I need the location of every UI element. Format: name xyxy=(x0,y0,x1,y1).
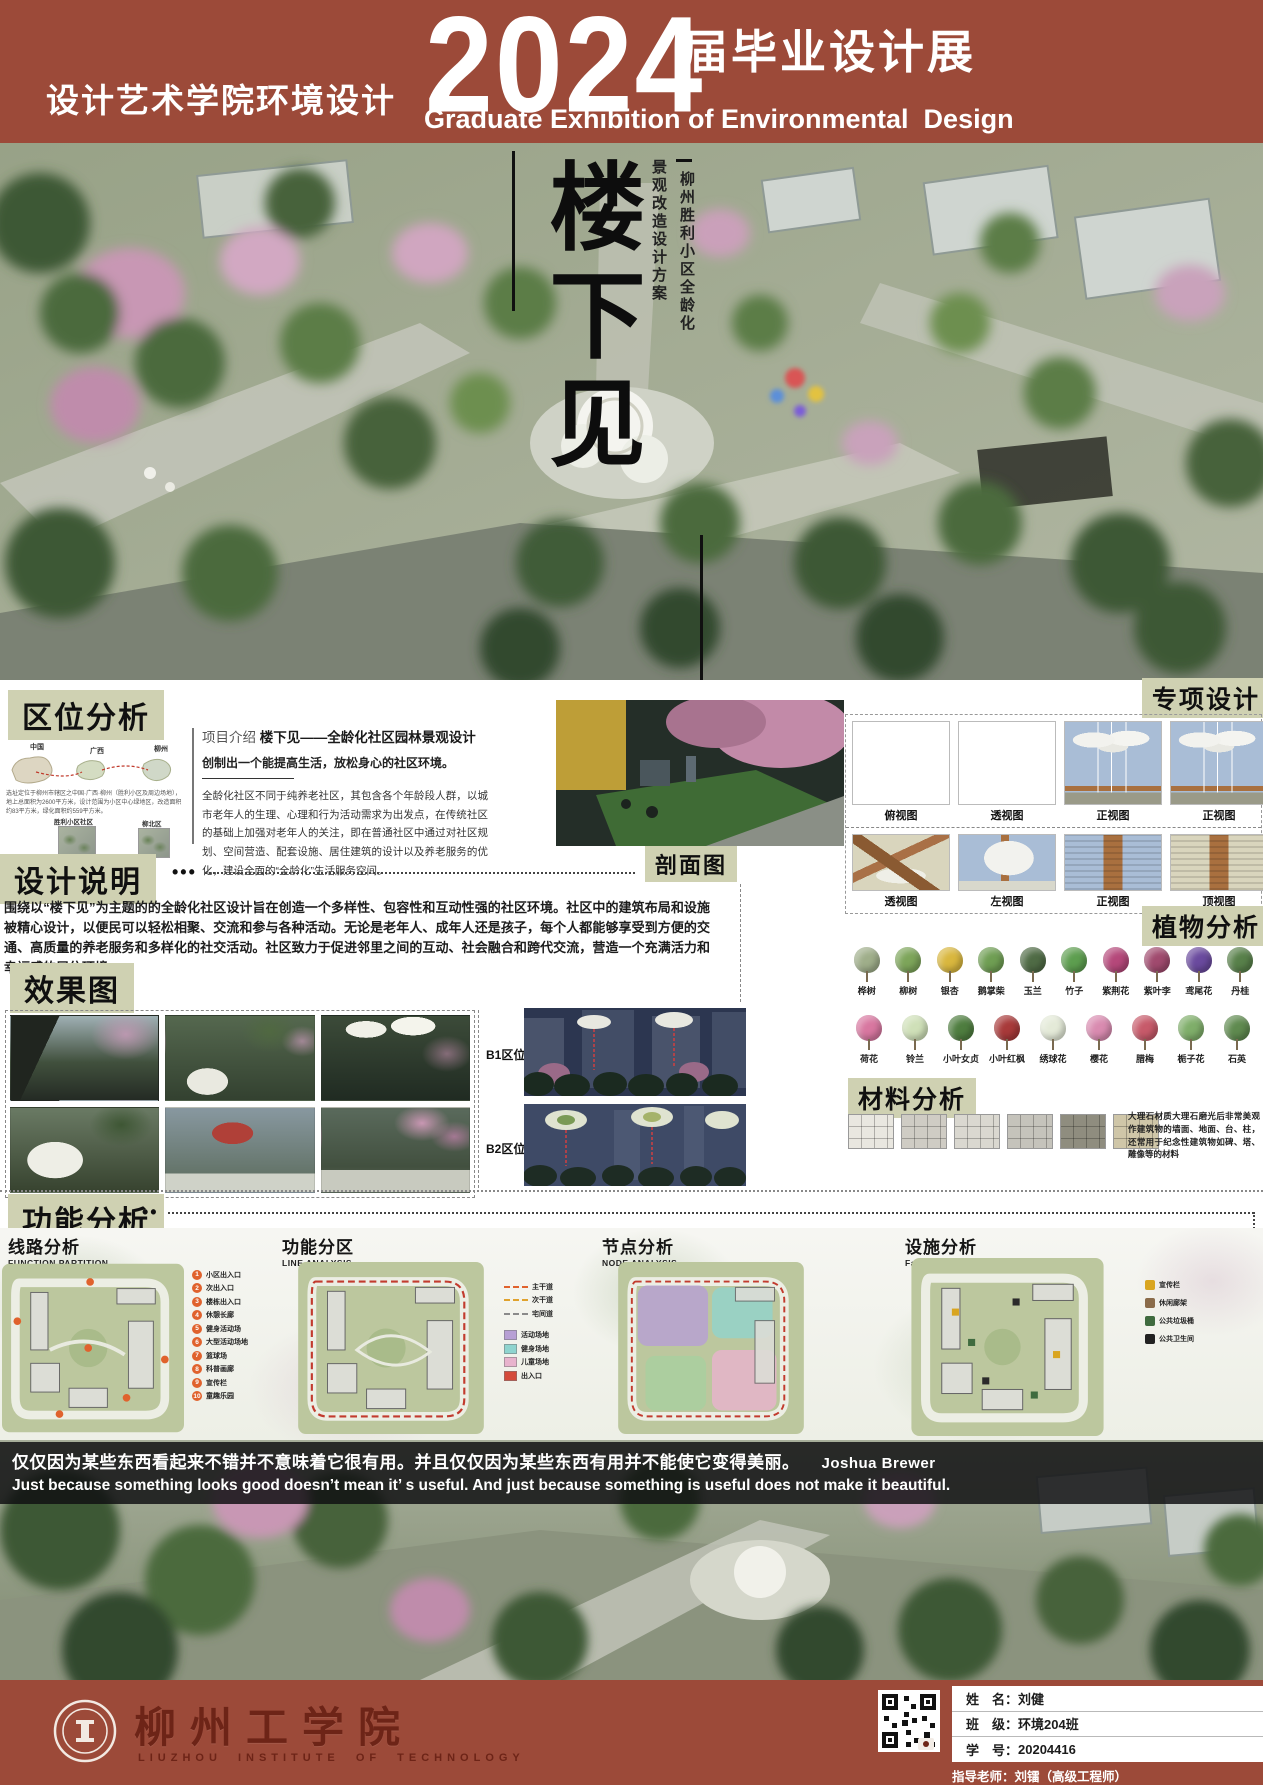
route-legend: 1 小区出入口 2 次出入口 3 楼栋出入口 4 休憩长廊 xyxy=(192,1268,248,1403)
view-label: 左视图 xyxy=(958,891,1056,913)
plant-icon xyxy=(1177,1014,1205,1050)
legend-label: 活动场地 xyxy=(521,1330,549,1340)
facility-analysis-plan xyxy=(905,1258,1110,1436)
view-thumbnail xyxy=(1170,834,1263,891)
node-line-legend: 主干道 次干道 宅间道 xyxy=(504,1280,553,1383)
heading-dots: ••• xyxy=(172,862,197,883)
legend-label: 休闲廊架 xyxy=(1159,1298,1187,1308)
special-design-row-1: 俯视图 透视图 正视图 正视图 xyxy=(846,715,1261,827)
legend-label: 次出入口 xyxy=(206,1283,234,1293)
sections-connector xyxy=(740,884,741,1002)
plant-name: 柳树 xyxy=(888,984,930,997)
plant-name: 银杏 xyxy=(929,984,971,997)
heading-dots: •• xyxy=(142,1202,159,1223)
legend-number-badge: 6 xyxy=(192,1337,202,1347)
plant-name: 紫叶李 xyxy=(1137,984,1179,997)
info-label: 班 级： xyxy=(966,1714,1018,1733)
plant-icon xyxy=(1185,946,1213,982)
legend-number-badge: 9 xyxy=(192,1378,202,1388)
site-label-shengli: 胜利小区社区 xyxy=(54,816,93,826)
plant-item: 鹅掌柴 xyxy=(971,946,1013,997)
legend-label: 健身场地 xyxy=(521,1344,549,1354)
legend-row: 6 大型活动场地 xyxy=(192,1336,248,1350)
project-subtitle-type: 景观改造设计方案 xyxy=(648,159,669,303)
legend-label: 公共垃圾桶 xyxy=(1159,1316,1194,1326)
intro-rule xyxy=(202,778,294,779)
plant-icon xyxy=(853,946,881,982)
quote-zh-text: 仅仅因为某些东西看起来不错并不意味着它很有用。并且仅仅因为某些东西有用并不能使它… xyxy=(12,1453,800,1472)
design-notes-rule xyxy=(205,872,635,874)
view-thumbnail xyxy=(852,834,950,891)
map-blobs-illustration xyxy=(6,750,184,790)
plant-name: 栀子花 xyxy=(1168,1052,1214,1065)
camera-icon xyxy=(918,1738,934,1750)
legend-facility-icon xyxy=(1145,1316,1155,1326)
plant-name: 桦树 xyxy=(846,984,888,997)
plant-item: 小叶女贞 xyxy=(938,1014,984,1065)
render-thumbnail xyxy=(165,1015,314,1101)
render-thumbnail xyxy=(10,1107,159,1193)
plant-row-2: 荷花 铃兰 小叶女贞 小叶红枫 绣球花 xyxy=(846,1014,1260,1065)
material-swatches xyxy=(848,1114,1159,1149)
exhibition-title-en: Graduate Exhibition of Environmental Des… xyxy=(424,104,1014,135)
plant-item: 绣球花 xyxy=(1030,1014,1076,1065)
legend-color-swatch xyxy=(504,1344,517,1354)
plant-icon xyxy=(1039,1014,1067,1050)
legend-row: 活动场地 xyxy=(504,1329,553,1343)
legend-label: 大型活动场地 xyxy=(206,1337,248,1347)
legend-row: 9 宣传栏 xyxy=(192,1376,248,1390)
plant-item: 小叶红枫 xyxy=(984,1014,1030,1065)
plant-item: 鸢尾花 xyxy=(1178,946,1220,997)
legend-label: 小区出入口 xyxy=(206,1270,241,1280)
plant-item: 紫荆花 xyxy=(1095,946,1137,997)
title-accent-bar-bottom xyxy=(700,535,703,680)
plant-icon xyxy=(1060,946,1088,982)
render-thumbnail xyxy=(10,1015,159,1101)
project-subtitle-site: 柳州胜利小区全龄化 xyxy=(676,171,697,333)
plant-name: 丹桂 xyxy=(1220,984,1262,997)
plant-icon xyxy=(1102,946,1130,982)
plant-name: 荷花 xyxy=(846,1052,892,1065)
intro-title: 楼下见——全龄化社区园林景观设计 xyxy=(260,730,476,745)
plant-item: 竹子 xyxy=(1054,946,1096,997)
render-thumbnail xyxy=(165,1107,314,1193)
section-b1-label: B1区位 xyxy=(486,1046,525,1063)
legend-label: 篮球场 xyxy=(206,1351,227,1361)
section-b1-drawing xyxy=(524,1008,746,1096)
legend-label: 童趣乐园 xyxy=(206,1391,234,1401)
legend-label: 楼栋出入口 xyxy=(206,1297,241,1307)
plant-item: 铃兰 xyxy=(892,1014,938,1065)
view-thumbnail xyxy=(1170,721,1263,805)
legend-label: 科普画廊 xyxy=(206,1364,234,1374)
legend-color-swatch xyxy=(504,1357,517,1367)
quote-author: Joshua Brewer xyxy=(822,1455,936,1472)
legend-row: 休闲廊架 xyxy=(1145,1294,1194,1312)
legend-color-swatch xyxy=(504,1371,517,1381)
legend-label: 儿童场地 xyxy=(521,1357,549,1367)
plant-row-1: 桦树 柳树 银杏 鹅掌柴 玉兰 竹子 xyxy=(846,946,1261,997)
render-grid xyxy=(5,1010,475,1198)
quote-band: 仅仅因为某些东西看起来不错并不意味着它很有用。并且仅仅因为某些东西有用并不能使它… xyxy=(0,1442,1263,1504)
quote-line-zh: 仅仅因为某些东西看起来不错并不意味着它很有用。并且仅仅因为某些东西有用并不能使它… xyxy=(12,1448,1263,1473)
plant-icon xyxy=(1131,1014,1159,1050)
plant-item: 银杏 xyxy=(929,946,971,997)
plant-item: 腊梅 xyxy=(1122,1014,1168,1065)
node-zone-items: 活动场地 健身场地 儿童场地 出入口 xyxy=(504,1329,553,1383)
legend-number-badge: 4 xyxy=(192,1310,202,1320)
view-label: 正视图 xyxy=(1170,805,1263,827)
header-band: 设计艺术学院环境设计 2024 届毕业设计展 Graduate Exhibiti… xyxy=(0,0,1263,143)
view-cell: 正视图 xyxy=(1064,721,1162,827)
view-cell: 透视图 xyxy=(852,834,950,913)
plant-item: 樱花 xyxy=(1076,1014,1122,1065)
legend-row: 7 篮球场 xyxy=(192,1349,248,1363)
plant-name: 紫荆花 xyxy=(1095,984,1137,997)
info-value: 刘健 xyxy=(1018,1689,1044,1708)
quote-line-en: Just because something looks good doesn’… xyxy=(12,1477,1263,1495)
legend-row: 次干道 xyxy=(504,1294,553,1308)
special-design-box: 俯视图 透视图 正视图 正视图 xyxy=(845,714,1262,914)
intro-divider xyxy=(192,728,194,844)
view-cell: 正视图 xyxy=(1170,721,1263,827)
legend-number-badge: 10 xyxy=(192,1391,202,1401)
legend-facility-icon xyxy=(1145,1334,1155,1344)
legend-row: 儿童场地 xyxy=(504,1356,553,1370)
school-name-en: LIUZHOU INSTITUTE OF TECHNOLOGY xyxy=(138,1752,525,1764)
section-heading-special-design: 专项设计 xyxy=(1142,678,1263,718)
view-cell: 透视图 xyxy=(958,721,1056,827)
school-emblem xyxy=(52,1698,118,1764)
legend-number-badge: 1 xyxy=(192,1270,202,1280)
plant-item: 柳树 xyxy=(888,946,930,997)
view-label: 正视图 xyxy=(1064,805,1162,827)
view-thumbnail xyxy=(958,721,1056,805)
info-value: 环境204班 xyxy=(1018,1714,1079,1733)
diagram-title: 功能分区 xyxy=(282,1233,354,1258)
material-swatch xyxy=(1060,1114,1106,1149)
plant-item: 荷花 xyxy=(846,1014,892,1065)
zoning-analysis-plan xyxy=(292,1262,490,1434)
view-cell: 正视图 xyxy=(1064,834,1162,913)
plant-item: 丹桂 xyxy=(1220,946,1262,997)
legend-row: 3 楼栋出入口 xyxy=(192,1295,248,1309)
diagram-title: 线路分析 xyxy=(8,1233,108,1258)
student-info-row: 学 号： 20204416 xyxy=(952,1737,1263,1762)
view-thumbnail xyxy=(852,721,950,805)
render-thumbnail xyxy=(321,1015,470,1101)
legend-row: 出入口 xyxy=(504,1369,553,1383)
plant-item: 石英 xyxy=(1214,1014,1260,1065)
plant-icon xyxy=(1085,1014,1113,1050)
view-label: 透视图 xyxy=(958,805,1056,827)
material-swatch xyxy=(848,1114,894,1149)
diagram-title: 设施分析 xyxy=(905,1233,1020,1258)
advisor-line: 指导老师：刘镭（高级工程师） xyxy=(952,1766,1127,1785)
plant-icon xyxy=(894,946,922,982)
diagram-title: 节点分析 xyxy=(602,1233,677,1258)
legend-row: 8 科普画廊 xyxy=(192,1363,248,1377)
location-maps: 中国 广西 柳州 选址定位于柳州市辖区之中国·广西·柳州（胜利小区及周边场地），… xyxy=(6,742,184,846)
intro-title-line: 项目介绍 楼下见——全龄化社区园林景观设计 xyxy=(202,726,488,746)
plant-name: 小叶女贞 xyxy=(938,1052,984,1065)
legend-label: 健身活动场 xyxy=(206,1324,241,1334)
legend-color-swatch xyxy=(504,1330,517,1340)
plant-icon xyxy=(1019,946,1047,982)
legend-row: 健身场地 xyxy=(504,1342,553,1356)
node-line-items: 主干道 次干道 宅间道 xyxy=(504,1280,553,1321)
band-separator xyxy=(0,1190,1263,1192)
hero-aerial-render: 楼下见 景观改造设计方案 柳州胜利小区全龄化 xyxy=(0,143,1263,680)
render-section-divider xyxy=(478,1010,479,1188)
view-thumbnail xyxy=(958,834,1056,891)
render-thumbnail xyxy=(321,1107,470,1193)
material-swatch xyxy=(901,1114,947,1149)
facility-legend: 宣传栏 休闲廊架 公共垃圾桶 公共卫生间 xyxy=(1145,1276,1194,1348)
plant-icon xyxy=(1143,946,1171,982)
section-heading-plants: 植物分析 xyxy=(1142,906,1263,946)
legend-number-badge: 2 xyxy=(192,1283,202,1293)
plant-name: 铃兰 xyxy=(892,1052,938,1065)
legend-row: 2 次出入口 xyxy=(192,1282,248,1296)
legend-label: 宅间道 xyxy=(532,1309,553,1319)
plant-item: 桦树 xyxy=(846,946,888,997)
section-heading-location: 区位分析 xyxy=(8,690,164,740)
courtyard-photo xyxy=(556,700,844,846)
info-label: 学 号： xyxy=(966,1740,1018,1759)
legend-facility-icon xyxy=(1145,1280,1155,1290)
plant-name: 石英 xyxy=(1214,1052,1260,1065)
legend-label: 主干道 xyxy=(532,1282,553,1292)
legend-row: 1 小区出入口 xyxy=(192,1268,248,1282)
legend-label: 宣传栏 xyxy=(206,1378,227,1388)
exhibition-title: 届毕业设计展 xyxy=(682,16,976,82)
school-name: 柳州工学院 xyxy=(134,1694,414,1755)
poster: 设计艺术学院环境设计 2024 届毕业设计展 Graduate Exhibiti… xyxy=(0,0,1263,1785)
function-analysis-band: 线路分析 FUNCTION PARTITION 功能分区 LINE ANALYS… xyxy=(0,1228,1263,1440)
plant-item: 玉兰 xyxy=(1012,946,1054,997)
plant-name: 鹅掌柴 xyxy=(971,984,1013,997)
plant-icon xyxy=(936,946,964,982)
section-b2-drawing xyxy=(524,1104,746,1186)
plant-icon xyxy=(855,1014,883,1050)
legend-row: 主干道 xyxy=(504,1280,553,1294)
student-info-panel: 姓 名： 刘健 班 级： 环境204班 学 号： 20204416 xyxy=(952,1686,1263,1762)
view-cell: 左视图 xyxy=(958,834,1056,913)
legend-dash-swatch xyxy=(504,1313,528,1315)
legend-label: 次干道 xyxy=(532,1295,553,1305)
legend-dash-swatch xyxy=(504,1286,528,1288)
section-heading-design-notes: 设计说明 xyxy=(0,854,156,904)
section-heading-materials: 材料分析 xyxy=(848,1078,976,1118)
legend-row: 公共垃圾桶 xyxy=(1145,1312,1194,1330)
legend-label: 公共卫生间 xyxy=(1159,1334,1194,1344)
material-swatch xyxy=(1007,1114,1053,1149)
view-thumbnail xyxy=(1064,721,1162,805)
material-description: 大理石材质大理石磨光后非常美观作建筑物的墙面、地面、台、柱，还常用于纪念性建筑物… xyxy=(1128,1110,1260,1161)
view-label: 透视图 xyxy=(852,891,950,913)
plant-name: 腊梅 xyxy=(1122,1052,1168,1065)
plant-name: 鸢尾花 xyxy=(1178,984,1220,997)
function-analysis-rule xyxy=(168,1212,1254,1214)
plant-item: 紫叶李 xyxy=(1137,946,1179,997)
student-info-row: 姓 名： 刘健 xyxy=(952,1686,1263,1712)
info-label: 姓 名： xyxy=(966,1689,1018,1708)
legend-row: 宅间道 xyxy=(504,1307,553,1321)
plant-icon xyxy=(901,1014,929,1050)
intro-label: 项目介绍 xyxy=(202,730,256,745)
location-caption: 选址定位于柳州市辖区之中国·广西·柳州（胜利小区及周边场地），地上总面积为260… xyxy=(6,790,184,817)
legend-row: 公共卫生间 xyxy=(1145,1330,1194,1348)
legend-label: 休憩长廊 xyxy=(206,1310,234,1320)
plant-icon xyxy=(993,1014,1021,1050)
legend-row: 10 童趣乐园 xyxy=(192,1390,248,1404)
legend-row: 宣传栏 xyxy=(1145,1276,1194,1294)
special-design-row-2: 透视图 左视图 正视图 顶视图 xyxy=(846,828,1261,913)
view-cell: 顶视图 xyxy=(1170,834,1263,913)
project-intro: 项目介绍 楼下见——全龄化社区园林景观设计 创制出一个能提高生活，放松身心的社区… xyxy=(202,726,488,880)
material-swatch xyxy=(954,1114,1000,1149)
section-heading-sections: 剖面图 xyxy=(645,846,737,882)
subtitle-tick xyxy=(676,159,692,162)
plant-icon xyxy=(947,1014,975,1050)
intro-body: 全龄化社区不同于纯养老社区，其包含各个年龄段人群，以城市老年人的生理、心理和行为… xyxy=(202,787,488,880)
legend-row: 4 休憩长廊 xyxy=(192,1309,248,1323)
intro-lead: 创制出一个能提高生活，放松身心的社区环境。 xyxy=(202,754,488,771)
legend-facility-icon xyxy=(1145,1298,1155,1308)
footer-band: 柳州工学院 LIUZHOU INSTITUTE OF TECHNOLOGY 姓 … xyxy=(0,1680,1263,1785)
plant-name: 竹子 xyxy=(1054,984,1096,997)
title-accent-bar-top xyxy=(512,151,515,311)
legend-label: 宣传栏 xyxy=(1159,1280,1180,1290)
plant-icon xyxy=(1223,1014,1251,1050)
section-heading-renders: 效果图 xyxy=(10,963,134,1013)
plant-name: 玉兰 xyxy=(1012,984,1054,997)
legend-number-badge: 7 xyxy=(192,1351,202,1361)
legend-label: 出入口 xyxy=(521,1371,542,1381)
project-title: 楼下见 xyxy=(540,157,636,481)
legend-number-badge: 3 xyxy=(192,1297,202,1307)
department-title: 设计艺术学院环境设计 xyxy=(46,74,396,122)
view-label: 俯视图 xyxy=(852,805,950,827)
node-analysis-plan xyxy=(612,1262,810,1434)
legend-row: 5 健身活动场 xyxy=(192,1322,248,1336)
legend-number-badge: 8 xyxy=(192,1364,202,1374)
plant-icon xyxy=(977,946,1005,982)
view-cell: 俯视图 xyxy=(852,721,950,827)
plant-item: 栀子花 xyxy=(1168,1014,1214,1065)
student-info-row: 班 级： 环境204班 xyxy=(952,1712,1263,1738)
legend-dash-swatch xyxy=(504,1299,528,1301)
info-value: 20204416 xyxy=(1018,1742,1076,1757)
plant-name: 樱花 xyxy=(1076,1052,1122,1065)
plant-name: 小叶红枫 xyxy=(984,1052,1030,1065)
legend-number-badge: 5 xyxy=(192,1324,202,1334)
plant-name: 绣球花 xyxy=(1030,1052,1076,1065)
plant-icon xyxy=(1226,946,1254,982)
view-thumbnail xyxy=(1064,834,1162,891)
route-analysis-plan xyxy=(2,1262,184,1434)
section-b2-label: B2区位 xyxy=(486,1140,525,1157)
site-label-liubei: 柳北区 xyxy=(142,818,162,828)
